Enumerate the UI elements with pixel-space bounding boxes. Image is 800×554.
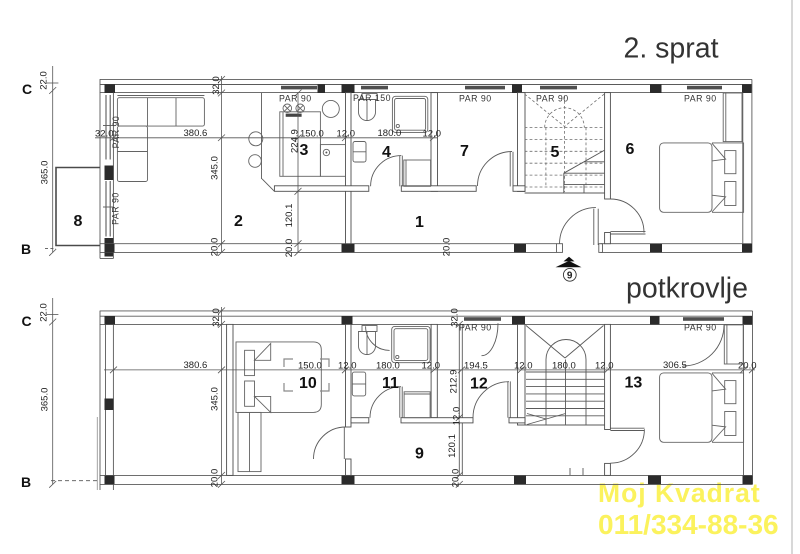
svg-text:20.0: 20.0: [284, 239, 295, 258]
svg-text:180.0: 180.0: [378, 128, 402, 139]
svg-text:20.0: 20.0: [210, 238, 221, 257]
svg-text:12.0: 12.0: [595, 361, 614, 372]
svg-text:1: 1: [415, 214, 424, 231]
svg-text:7: 7: [460, 143, 469, 160]
svg-text:PAR 90: PAR 90: [459, 94, 492, 104]
svg-text:PAR 150: PAR 150: [353, 93, 391, 103]
svg-text:2: 2: [234, 213, 243, 230]
svg-text:011/334-88-36: 011/334-88-36: [598, 509, 779, 540]
svg-text:306.5: 306.5: [663, 360, 687, 371]
svg-text:20.0: 20.0: [738, 361, 757, 372]
svg-text:120.1: 120.1: [447, 434, 458, 458]
svg-text:potkrovlje: potkrovlje: [626, 273, 748, 305]
svg-text:B: B: [21, 241, 31, 257]
svg-text:150.0: 150.0: [298, 361, 322, 372]
svg-text:12.0: 12.0: [514, 361, 533, 372]
svg-text:PAR 90: PAR 90: [536, 94, 569, 104]
svg-text:PAR 90: PAR 90: [111, 116, 121, 149]
svg-text:8: 8: [74, 213, 83, 230]
svg-text:150.0: 150.0: [300, 129, 324, 140]
svg-text:22.0: 22.0: [39, 303, 50, 322]
svg-text:212.9: 212.9: [449, 370, 460, 394]
svg-text:6: 6: [626, 141, 635, 158]
svg-text:365.0: 365.0: [40, 161, 51, 185]
svg-text:180.0: 180.0: [376, 361, 400, 372]
svg-text:20.0: 20.0: [210, 469, 221, 488]
svg-text:180.0: 180.0: [552, 361, 576, 372]
svg-text:380.6: 380.6: [184, 128, 208, 139]
svg-text:32.0: 32.0: [211, 308, 222, 327]
svg-text:365.0: 365.0: [40, 388, 51, 412]
svg-text:PAR 90: PAR 90: [459, 323, 492, 333]
svg-text:2. sprat: 2. sprat: [624, 33, 719, 65]
svg-text:3: 3: [300, 142, 309, 159]
svg-text:20.0: 20.0: [451, 469, 462, 488]
svg-text:4: 4: [382, 144, 391, 161]
svg-text:345.0: 345.0: [210, 387, 221, 411]
svg-text:12.0: 12.0: [337, 129, 356, 140]
svg-text:22.0: 22.0: [39, 71, 50, 90]
svg-text:12.0: 12.0: [338, 361, 357, 372]
svg-text:B: B: [21, 474, 31, 490]
svg-text:PAR 90: PAR 90: [111, 192, 121, 225]
svg-text:12.0: 12.0: [452, 407, 463, 426]
svg-text:12.0: 12.0: [423, 129, 442, 140]
svg-text:11: 11: [382, 375, 399, 392]
svg-text:C: C: [22, 313, 32, 329]
svg-text:12.0: 12.0: [422, 361, 441, 372]
svg-text:13: 13: [625, 375, 643, 392]
svg-text:20.0: 20.0: [442, 238, 453, 257]
svg-text:10: 10: [299, 375, 317, 392]
svg-text:12: 12: [470, 376, 488, 393]
svg-text:380.6: 380.6: [184, 360, 208, 371]
svg-text:5: 5: [551, 144, 560, 161]
svg-text:C: C: [22, 81, 32, 97]
svg-text:9: 9: [415, 446, 424, 463]
svg-text:PAR 90: PAR 90: [279, 94, 312, 104]
svg-text:345.0: 345.0: [210, 156, 221, 180]
svg-text:Moj Kvadrat: Moj Kvadrat: [598, 478, 761, 508]
svg-text:194.5: 194.5: [464, 361, 488, 372]
svg-text:120.1: 120.1: [284, 204, 295, 228]
svg-text:9: 9: [567, 271, 573, 282]
svg-text:32.0: 32.0: [211, 76, 222, 95]
svg-text:PAR 90: PAR 90: [684, 323, 717, 333]
svg-text:PAR 90: PAR 90: [684, 94, 717, 104]
